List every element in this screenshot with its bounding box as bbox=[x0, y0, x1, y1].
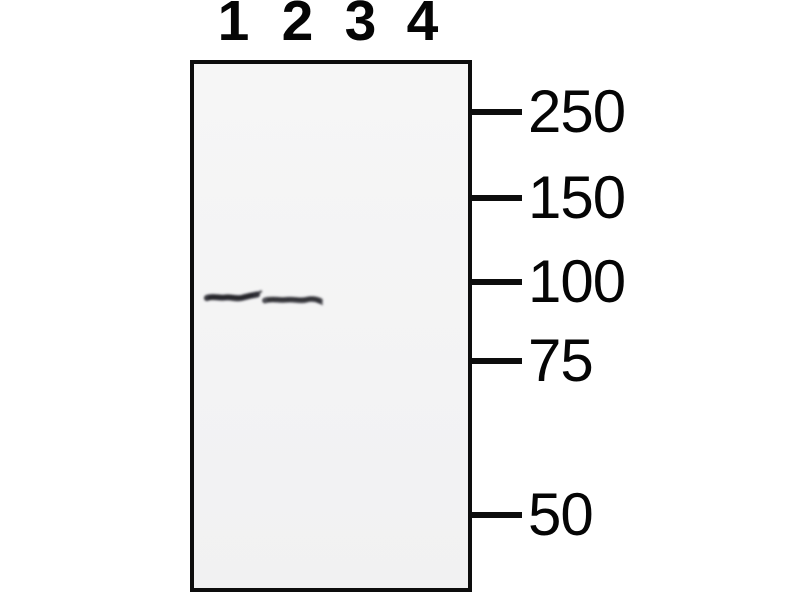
marker-150-label: 150 bbox=[528, 168, 625, 228]
marker-75: 75 bbox=[472, 331, 593, 391]
band-lane-1 bbox=[207, 292, 261, 299]
marker-50-tick bbox=[472, 512, 522, 518]
lane-label-3: 3 bbox=[345, 0, 376, 53]
marker-75-label: 75 bbox=[528, 331, 593, 391]
marker-100: 100 bbox=[472, 252, 625, 312]
western-blot-figure: 1 2 3 4 250 bbox=[0, 0, 800, 600]
marker-75-tick bbox=[472, 358, 522, 364]
protein-bands-layer bbox=[194, 64, 468, 588]
marker-250: 250 bbox=[472, 82, 625, 142]
marker-100-label: 100 bbox=[528, 252, 625, 312]
marker-150: 150 bbox=[472, 168, 625, 228]
lane-label-4: 4 bbox=[407, 0, 438, 53]
band-lane-2 bbox=[265, 299, 322, 304]
marker-100-tick bbox=[472, 279, 522, 285]
lane-label-2: 2 bbox=[282, 0, 313, 53]
marker-150-tick bbox=[472, 195, 522, 201]
lane-label-1: 1 bbox=[218, 0, 249, 53]
marker-250-label: 250 bbox=[528, 82, 625, 142]
marker-250-tick bbox=[472, 109, 522, 115]
blot-membrane bbox=[190, 60, 472, 592]
marker-50-label: 50 bbox=[528, 485, 593, 545]
marker-50: 50 bbox=[472, 485, 593, 545]
